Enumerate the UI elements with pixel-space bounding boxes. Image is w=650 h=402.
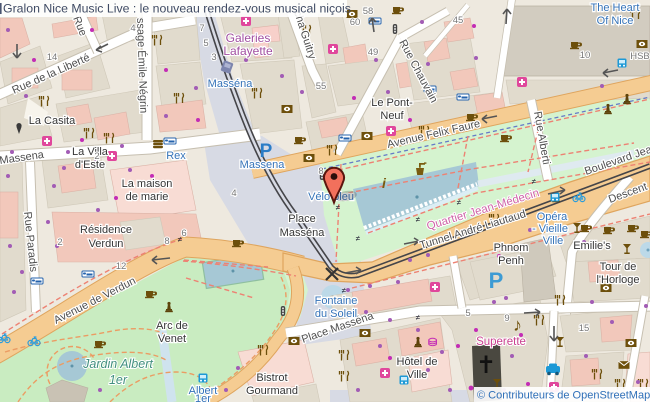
svg-text:♪: ♪ [513,315,522,335]
svg-text:Tour de: Tour de [600,261,637,273]
svg-text:≠: ≠ [416,313,421,322]
svg-text:Masséna: Masséna [280,227,326,239]
svg-text:≠: ≠ [532,177,537,186]
svg-text:Galeries: Galeries [226,31,271,45]
svg-text:Ville: Ville [407,369,428,381]
svg-text:Phnom: Phnom [494,242,529,254]
svg-text:55: 55 [316,81,327,92]
svg-text:9: 9 [504,313,509,324]
svg-text:8: 8 [318,166,323,177]
svg-text:✝: ✝ [476,352,496,379]
svg-text:≠: ≠ [457,198,462,207]
svg-text:45: 45 [453,15,464,26]
svg-text:Gralon Nice Music Live : le no: Gralon Nice Music Live : le nouveau rend… [3,2,351,16]
svg-text:Fontaine: Fontaine [315,295,358,307]
svg-text:⛁: ⛁ [428,337,437,349]
svg-text:Penh: Penh [498,255,524,267]
svg-text:Venet: Venet [158,333,186,345]
svg-text:1er: 1er [109,373,128,387]
svg-text:du Soleil: du Soleil [315,308,357,320]
svg-text:P: P [489,268,504,293]
svg-text:La Casita: La Casita [29,115,76,127]
svg-text:58: 58 [363,6,374,17]
svg-text:Bistrot: Bistrot [256,372,287,384]
svg-text:Neuf: Neuf [380,110,404,122]
svg-text:8: 8 [164,236,169,247]
svg-text:2: 2 [94,151,99,162]
svg-text:Opéra: Opéra [537,211,568,223]
svg-text:3: 3 [211,52,216,63]
svg-text:Lafayette: Lafayette [223,44,273,58]
svg-text:Massena: Massena [240,159,286,171]
svg-text:La maison: La maison [122,178,173,190]
svg-text:2: 2 [57,237,62,248]
svg-text:Of Nice: Of Nice [597,15,634,27]
svg-text:de marie: de marie [126,191,169,203]
svg-text:1er: 1er [195,393,211,402]
svg-text:≠: ≠ [342,286,347,295]
svg-text:Le Pont-: Le Pont- [371,97,413,109]
svg-text:4: 4 [231,188,236,199]
svg-text:7: 7 [199,23,204,34]
svg-text:The Heart: The Heart [591,2,640,14]
svg-text:Rex: Rex [166,150,186,162]
svg-text:Superette: Superette [476,336,526,348]
svg-text:- Vieille: - Vieille [532,223,568,235]
svg-text:≠: ≠ [356,234,361,243]
svg-text:15: 15 [579,323,590,334]
svg-text:Hôtel de: Hôtel de [397,356,438,368]
svg-text:5: 5 [465,308,470,319]
svg-text:Place: Place [288,213,316,225]
svg-text:12: 12 [116,261,127,272]
svg-text:Masséna: Masséna [208,78,254,90]
svg-text:La Villa: La Villa [72,146,109,158]
svg-text:Emilie's: Emilie's [573,240,611,252]
svg-text:4: 4 [130,23,135,34]
svg-text:Résidence: Résidence [80,224,132,236]
svg-text:d'Este: d'Este [75,159,105,171]
svg-text:Ville: Ville [543,235,564,247]
svg-text:Verdun: Verdun [89,238,124,250]
svg-text:HSB: HSB [630,51,650,62]
svg-text:5: 5 [203,38,208,49]
svg-text:49: 49 [368,47,379,58]
svg-text:Gourmand: Gourmand [246,385,298,397]
svg-text:14: 14 [47,52,58,63]
svg-text:Jardin Albert: Jardin Albert [82,357,153,371]
svg-text:© Contributeurs de OpenStreetM: © Contributeurs de OpenStreetMap [477,390,650,402]
svg-text:≠: ≠ [336,203,341,212]
svg-text:6: 6 [181,228,186,239]
svg-text:≠: ≠ [416,215,421,224]
svg-text:60: 60 [350,17,361,28]
svg-text:Arc de: Arc de [156,320,188,332]
svg-text:l'Horloge: l'Horloge [596,274,639,286]
svg-text:10: 10 [580,50,591,61]
